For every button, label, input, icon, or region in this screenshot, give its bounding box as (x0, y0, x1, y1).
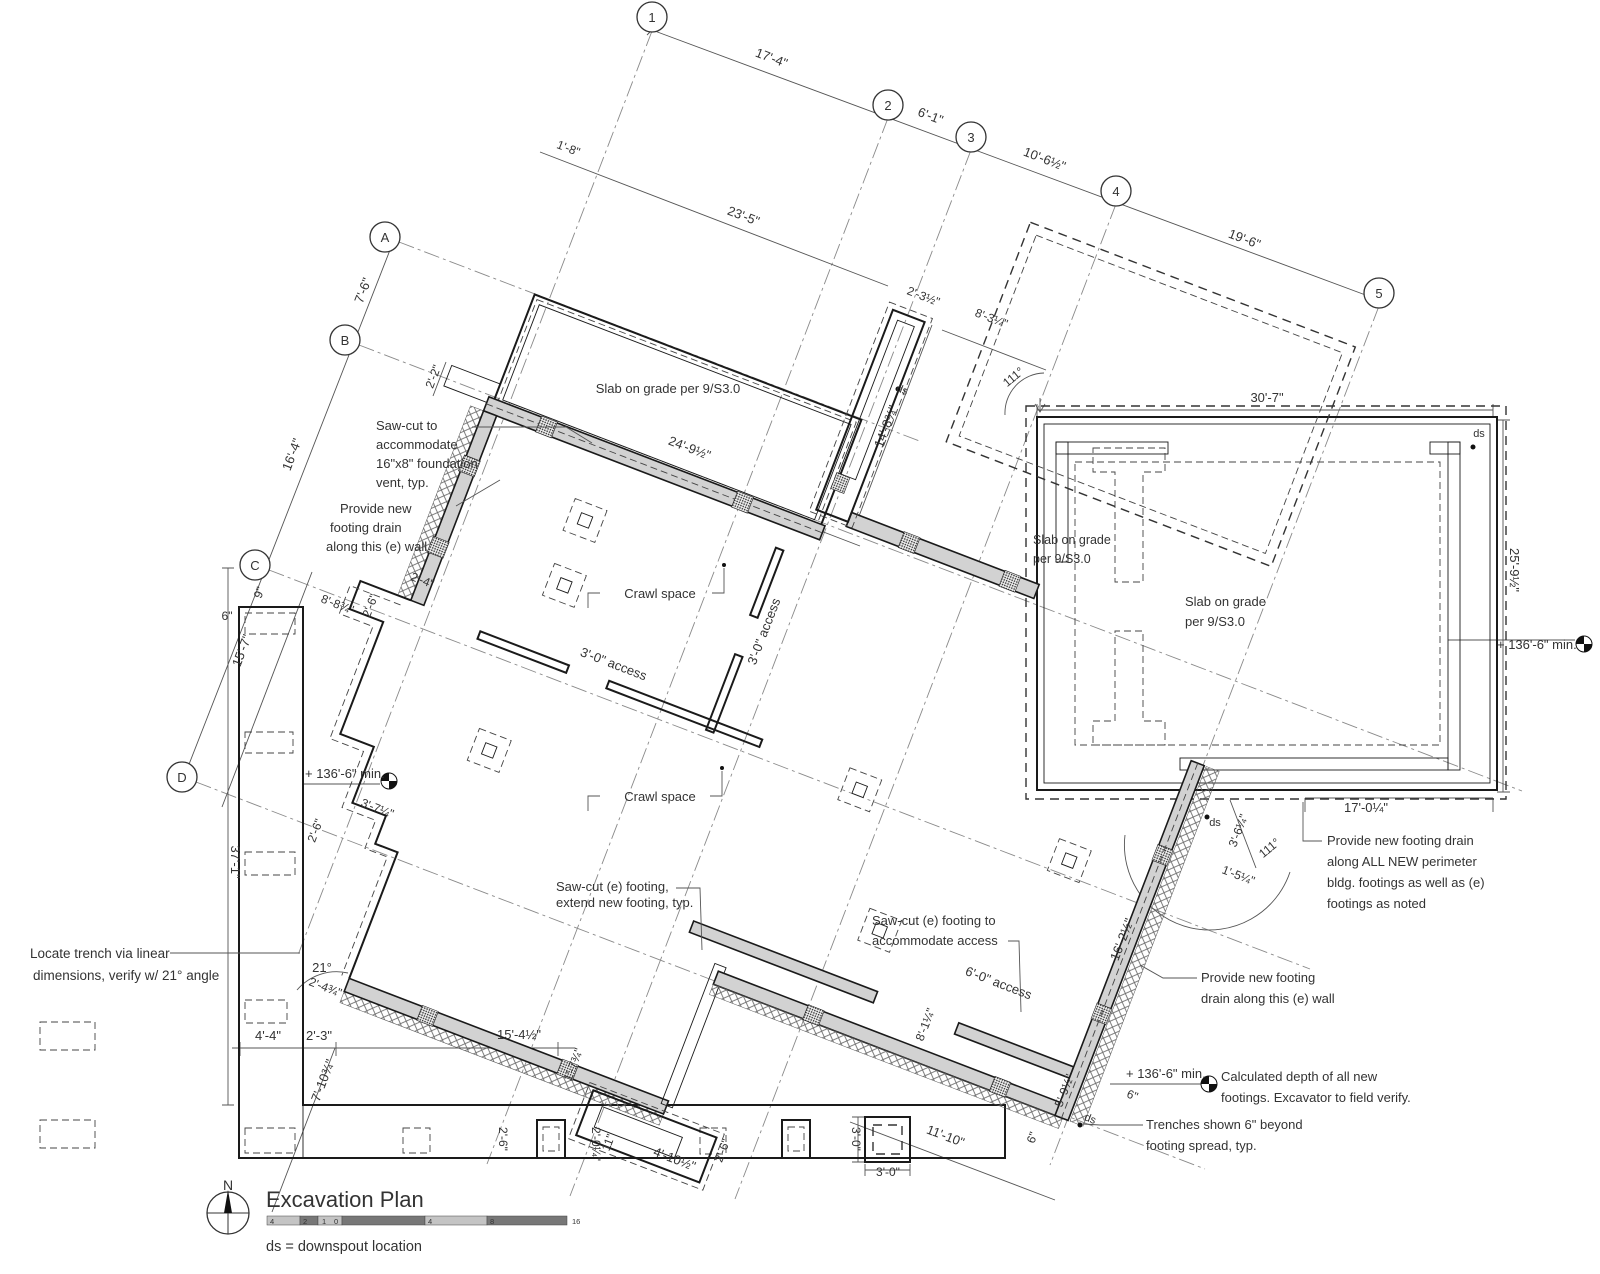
dim-19-6: 19'-6" (1226, 226, 1263, 252)
elev-136-6-bottom: + 136'-6" min. (1126, 1066, 1206, 1081)
excavation-trench (40, 607, 1005, 1162)
dim-2-6-a: 2'-6" (359, 592, 381, 619)
tilted-building (193, 41, 1379, 1274)
label-slab-1: Slab on grade per 9/S3.0 (596, 381, 741, 396)
dim-6in-a: 6" (1125, 1087, 1140, 1104)
angle-111-top: 111° (1000, 364, 1027, 390)
footing-pad (537, 1120, 565, 1158)
note-locate-trench-2: dimensions, verify w/ 21° angle (33, 968, 219, 983)
dim-16-4: 16'-4" (279, 436, 305, 473)
note-drain-allnew-1: Provide new footing drain (1327, 833, 1474, 848)
note-sawcut-extend-1: Saw-cut (e) footing, (556, 879, 669, 894)
label-access-3-0-a: 3'-0" access (578, 644, 649, 683)
note-sawcut-extend-2: extend new footing, typ. (556, 895, 693, 910)
dim-2-6-d: 2'-6" (496, 1127, 510, 1151)
note-trenches-2: footing spread, typ. (1146, 1138, 1257, 1153)
dim-4-10-half: 4'-10½" (651, 1144, 698, 1174)
dim-25-9-half: 25'-9½" (1507, 548, 1522, 592)
dim-24-9-half: 24'-9½" (666, 433, 713, 463)
grid-bubble-label: 5 (1375, 286, 1382, 301)
scale-bar-segment (342, 1216, 425, 1225)
footing-pad-3-0 (865, 1117, 910, 1162)
scale-tick-label: 2 (303, 1217, 307, 1226)
note-sawcut-access-1: Saw-cut (e) footing to (872, 913, 996, 928)
grid-bubble-label: C (250, 558, 259, 573)
elev-136-6-right: + 136'-6" min. (1497, 637, 1577, 652)
pier-pad (457, 496, 1143, 1007)
label-access-3-0-b: 3'-0" access (744, 596, 783, 667)
scale-tick-label: 1 (322, 1217, 326, 1226)
title-block: N Excavation Plan 42104816 ds = downspou… (207, 1177, 580, 1255)
note-drain-left-3: along this (e) wall (326, 539, 427, 554)
dim-6in-left: 6" (222, 609, 233, 623)
dim-7-10: 7'-10¾" (308, 1057, 338, 1104)
note-sawcut-vent-2: accommodate (376, 437, 458, 452)
dim-7-6: 7'-6" (351, 275, 374, 305)
grid-bubble-label: 4 (1112, 184, 1119, 199)
note-drain-left-1: Provide new (340, 501, 412, 516)
note-drain-allnew-3: bldg. footings as well as (e) (1327, 875, 1485, 890)
footing-pad (782, 1120, 810, 1158)
dim-2-3: 2'-3" (306, 1028, 332, 1043)
scale-tick-label: 8 (490, 1217, 494, 1226)
dim-30-7: 30'-7" (1250, 390, 1284, 405)
downspout-dot (1471, 445, 1476, 450)
north-arrow: N (207, 1177, 249, 1234)
note-sawcut-vent-3: 16"x8" foundation (376, 456, 478, 471)
dim-37-1: 37'-1" (228, 845, 243, 879)
dim-14-8: 14'-8¾" (871, 403, 901, 450)
dim-6-1: 6'-1" (916, 104, 946, 127)
note-sawcut-vent-4: vent, typ. (376, 475, 429, 490)
note-drain-right-2: drain along this (e) wall (1201, 991, 1335, 1006)
downspout-dot (1078, 1123, 1083, 1128)
dim-8-8: 8'-8¾" (319, 592, 356, 617)
dim-3-0-h: 3'-0" (876, 1165, 900, 1179)
scale-tick-label: 4 (428, 1217, 432, 1226)
note-sawcut-access-2: accommodate access (872, 933, 998, 948)
ds-bottom-right-bldg: ds (1209, 817, 1221, 829)
grid-bubble-label: 1 (648, 10, 655, 25)
elev-136-6-left: + 136'-6" min. (305, 766, 385, 781)
grid-bubble-label: D (177, 770, 186, 785)
dim-2-4-3q: 2'-4¾" (307, 975, 344, 1000)
dim-1-5-quarter: 1'-5¼" (1220, 863, 1257, 888)
dim-4-4: 4'-4" (255, 1028, 281, 1043)
scale-tick-label: 16 (572, 1217, 580, 1226)
note-drain-right-1: Provide new footing (1201, 970, 1315, 985)
note-trenches-1: Trenches shown 6" beyond (1146, 1117, 1303, 1132)
dim-6in-b: 6" (1024, 1130, 1041, 1145)
dim-8-3-quarter: 8'-3¼" (973, 306, 1010, 331)
label-slab-3b: per 9/S3.0 (1185, 614, 1245, 629)
plan-title: Excavation Plan (266, 1187, 424, 1212)
note-locate-trench-1: Locate trench via linear (30, 946, 170, 961)
label-crawl-2: Crawl space (624, 789, 696, 804)
dim-1-8: 1'-8" (555, 137, 582, 159)
scale-tick-label: 4 (270, 1217, 274, 1226)
dim-8-1-quarter: 8'-1¼" (913, 1006, 938, 1043)
legend-ds: ds = downspout location (266, 1239, 422, 1255)
note-drain-allnew-2: along ALL NEW perimeter (1327, 854, 1477, 869)
scale-bar-segment (487, 1216, 567, 1225)
dim-11-10: 11'-10" (925, 1122, 968, 1150)
dim-3-7: 3'-7¼" (359, 796, 396, 821)
grid-bubble-label: A (381, 230, 390, 245)
note-calc-depth-1: Calculated depth of all new (1221, 1069, 1378, 1084)
dim-17-0-quarter: 17'-0¼" (1344, 800, 1388, 815)
label-access-6-0: 6'-0" access (963, 963, 1034, 1002)
note-drain-allnew-4: footings as noted (1327, 896, 1426, 911)
note-sawcut-vent-1: Saw-cut to (376, 418, 437, 433)
angle-111-bottom: 111° (1256, 835, 1283, 861)
scale-bar-segment (425, 1216, 487, 1225)
scale-tick-label: 0 (334, 1217, 338, 1226)
note-drain-left-2: footing drain (330, 520, 402, 535)
label-crawl-1: Crawl space (624, 586, 696, 601)
label-slab-2b: per 9/S3.0 (1033, 552, 1091, 566)
dim-2-3-half: 2'-3½" (905, 284, 942, 309)
note-calc-depth-2: footings. Excavator to field verify. (1221, 1090, 1411, 1105)
north-label: N (223, 1177, 233, 1193)
grid-bubble-label: B (341, 333, 350, 348)
dim-15-7: 15'-7" (229, 632, 255, 669)
ds-top-right: ds (1473, 428, 1485, 440)
dim-3-6-quarter: 3'-6¼" (1226, 812, 1251, 849)
right-building (1026, 406, 1506, 820)
scale-bar: 42104816 (267, 1216, 580, 1226)
excavation-plan-canvas: 12345ABCD 17'-4"6'-1"10'-6½"19'-6"1'-8"2… (0, 0, 1600, 1274)
dim-3-0-v: 3'-0" (849, 1127, 863, 1151)
dim-17-4: 17'-4" (753, 45, 790, 71)
label-slab-3a: Slab on grade (1185, 594, 1266, 609)
grid-bubble-label: 2 (884, 98, 891, 113)
dim-15-4-half: 15'-4½" (497, 1027, 541, 1042)
grid-bubble-label: 3 (967, 130, 974, 145)
dim-23-5: 23'-5" (725, 203, 762, 229)
dim-9in: 9" (251, 585, 268, 600)
label-slab-2a: Slab on grade (1033, 533, 1111, 547)
angle-21: 21° (312, 960, 332, 975)
